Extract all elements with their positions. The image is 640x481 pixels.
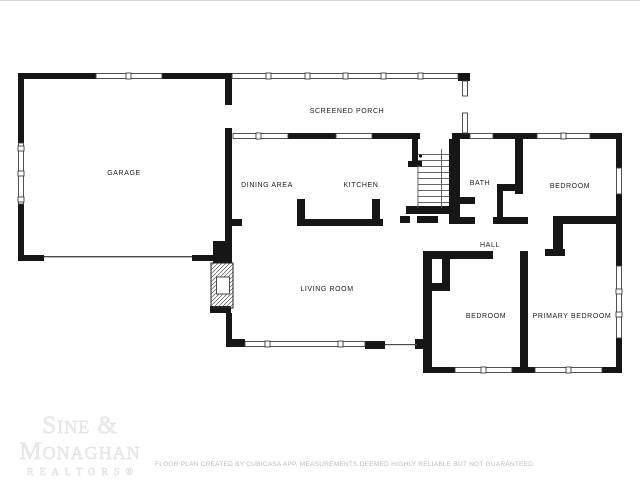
window-mullion bbox=[338, 341, 343, 347]
window bbox=[470, 134, 493, 139]
wall-segment bbox=[18, 204, 24, 261]
window bbox=[336, 134, 372, 139]
walls bbox=[18, 73, 622, 373]
wall-segment bbox=[225, 219, 242, 226]
wall-segment bbox=[553, 216, 622, 224]
room-labels: GARAGE SCREENED PORCH DINING AREA KITCHE… bbox=[107, 108, 611, 320]
wall-segment bbox=[602, 367, 622, 373]
window bbox=[617, 266, 622, 338]
window-mullion bbox=[18, 171, 24, 176]
window-mullion bbox=[381, 73, 386, 79]
window-mullion bbox=[305, 73, 310, 79]
wall-segment bbox=[442, 257, 450, 291]
stair-step bbox=[418, 184, 449, 185]
stair-edge bbox=[418, 165, 419, 208]
disclaimer-text: FLOOR PLAN CREATED BY CUBICASA APP, MEAS… bbox=[155, 461, 635, 468]
room-label-kitchen: KITCHEN bbox=[344, 182, 379, 189]
wall-segment bbox=[553, 219, 563, 253]
garage-door-line bbox=[44, 256, 192, 257]
stair-start-dot bbox=[419, 154, 422, 157]
stair-step bbox=[418, 196, 449, 197]
wall-segment bbox=[372, 199, 380, 226]
wall-segment bbox=[18, 73, 96, 79]
fireplace-firebox bbox=[217, 277, 230, 294]
wall-segment bbox=[18, 73, 24, 143]
window-mullion bbox=[561, 133, 566, 139]
window bbox=[463, 81, 468, 96]
window-mullion bbox=[256, 133, 261, 139]
wall-segment bbox=[423, 251, 493, 259]
wall-segment bbox=[493, 133, 537, 139]
room-label-bedroom-upper: BEDROOM bbox=[550, 183, 590, 190]
room-label-dining-area: DINING AREA bbox=[241, 182, 293, 189]
floor-plan-drawing: GARAGE SCREENED PORCH DINING AREA KITCHE… bbox=[0, 1, 640, 481]
stair-step bbox=[418, 166, 449, 167]
window bbox=[463, 113, 468, 133]
wall-segment bbox=[288, 133, 336, 139]
wall-segment bbox=[460, 197, 475, 204]
wall-segment bbox=[162, 73, 232, 79]
window-mullion bbox=[265, 341, 270, 347]
window-mullion bbox=[418, 73, 423, 79]
watermark-line-1: Sine & bbox=[0, 413, 160, 438]
room-label-living-room: LIVING ROOM bbox=[300, 286, 353, 293]
wall-segment bbox=[616, 133, 622, 168]
wall-segment bbox=[458, 73, 470, 81]
stair-step bbox=[418, 202, 449, 203]
stair-step bbox=[418, 160, 449, 161]
brokerage-watermark: Sine & Monaghan REALTORS® bbox=[0, 413, 160, 478]
wall-segment bbox=[520, 251, 528, 373]
window-mullion bbox=[126, 73, 131, 79]
wall-segment bbox=[452, 133, 470, 139]
room-label-primary-bedroom: PRIMARY BEDROOM bbox=[533, 313, 612, 320]
window-mullion bbox=[343, 73, 348, 79]
wall-segment bbox=[225, 73, 232, 105]
watermark-line-3: REALTORS® bbox=[0, 468, 160, 478]
window bbox=[245, 342, 365, 347]
staircase bbox=[418, 149, 450, 208]
window-mullion bbox=[18, 146, 24, 151]
room-label-bedroom-lower: BEDROOM bbox=[466, 313, 506, 320]
wall-segment bbox=[616, 194, 622, 266]
stair-step bbox=[418, 178, 449, 179]
window-mullion bbox=[566, 367, 571, 373]
chimney bbox=[213, 241, 232, 263]
threshold-line bbox=[385, 344, 417, 345]
window-mullion bbox=[481, 367, 486, 373]
wall-segment bbox=[545, 249, 565, 256]
wall-segment bbox=[226, 339, 245, 347]
window-mullion bbox=[18, 197, 24, 202]
floor-plan-page: GARAGE SCREENED PORCH DINING AREA KITCHE… bbox=[0, 0, 640, 481]
window-mullion bbox=[616, 312, 622, 317]
wall-segment bbox=[372, 133, 420, 139]
room-label-garage: GARAGE bbox=[107, 170, 141, 177]
wall-segment bbox=[406, 206, 453, 214]
room-label-bath: BATH bbox=[470, 180, 491, 187]
room-label-screened-porch: SCREENED PORCH bbox=[310, 108, 385, 115]
watermark-line-2: Monaghan bbox=[0, 439, 160, 464]
wall-segment bbox=[400, 216, 410, 223]
stair-step bbox=[418, 154, 449, 155]
stair-step bbox=[418, 172, 449, 173]
wall-segment bbox=[423, 251, 432, 371]
fireplace bbox=[211, 263, 233, 308]
window bbox=[617, 168, 622, 194]
room-label-hall: HALL bbox=[480, 242, 500, 249]
wall-segment bbox=[497, 184, 503, 224]
wall-segment bbox=[192, 255, 213, 261]
wall-segment bbox=[297, 219, 383, 226]
wall-segment bbox=[18, 255, 44, 261]
wall-segment bbox=[450, 217, 475, 224]
wall-segment bbox=[365, 341, 385, 349]
wall-segment bbox=[417, 216, 438, 223]
window-mullion bbox=[616, 289, 622, 294]
wall-segment bbox=[297, 199, 305, 226]
window-mullion bbox=[266, 73, 271, 79]
stair-step bbox=[418, 190, 449, 191]
wall-segment bbox=[226, 313, 232, 341]
